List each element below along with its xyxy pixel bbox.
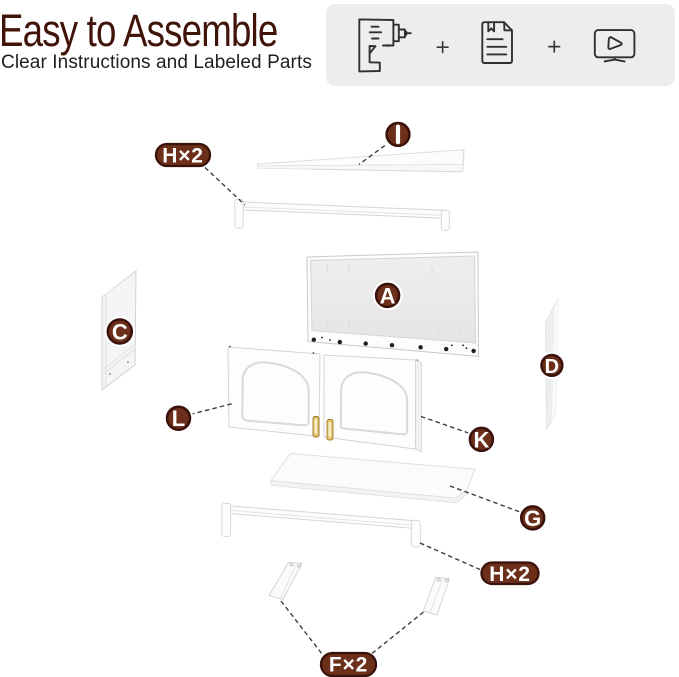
svg-text:A: A xyxy=(380,283,396,308)
svg-text:C: C xyxy=(112,320,128,345)
svg-text:D: D xyxy=(545,356,559,378)
svg-text:K: K xyxy=(473,427,489,452)
svg-text:F×2: F×2 xyxy=(329,654,368,677)
svg-text:H×2: H×2 xyxy=(489,563,531,586)
svg-text:L: L xyxy=(172,406,185,431)
svg-text:G: G xyxy=(524,506,541,531)
svg-text:H×2: H×2 xyxy=(162,145,204,168)
